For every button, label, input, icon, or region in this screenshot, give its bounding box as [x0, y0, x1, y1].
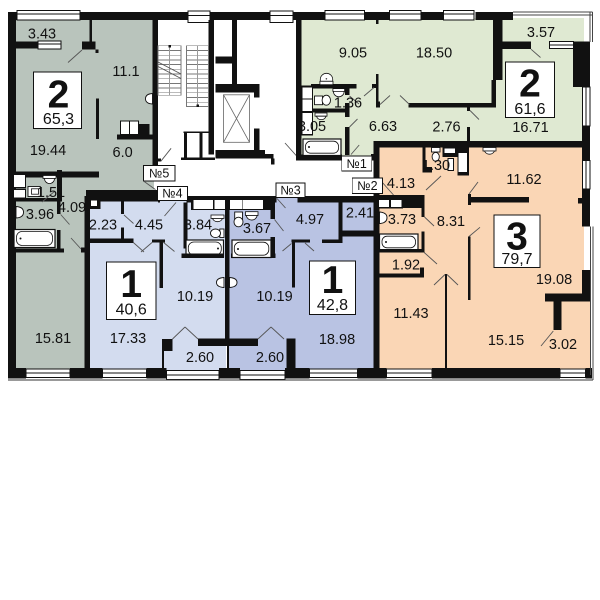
- svg-text:15.81: 15.81: [35, 331, 71, 347]
- svg-text:1.51: 1.51: [37, 185, 65, 201]
- svg-text:9.05: 9.05: [339, 46, 367, 62]
- svg-text:№3: №3: [280, 184, 300, 198]
- svg-text:10.19: 10.19: [177, 289, 213, 305]
- svg-text:18.98: 18.98: [319, 332, 355, 348]
- svg-text:3.96: 3.96: [26, 207, 54, 223]
- svg-text:40,6: 40,6: [116, 302, 147, 319]
- svg-text:79,7: 79,7: [501, 251, 532, 268]
- svg-text:1: 1: [120, 263, 142, 306]
- svg-text:65,3: 65,3: [43, 111, 74, 128]
- svg-text:11.1: 11.1: [112, 64, 139, 80]
- svg-text:3.67: 3.67: [243, 221, 271, 237]
- svg-text:2.60: 2.60: [256, 350, 284, 366]
- svg-text:8.31: 8.31: [437, 214, 465, 230]
- svg-text:6.0: 6.0: [113, 145, 133, 161]
- svg-text:3.57: 3.57: [527, 25, 555, 41]
- svg-text:61,6: 61,6: [514, 101, 545, 118]
- svg-text:11.43: 11.43: [393, 306, 428, 322]
- svg-text:4.09: 4.09: [58, 200, 86, 216]
- svg-text:2.41: 2.41: [346, 206, 374, 222]
- svg-text:19.08: 19.08: [536, 272, 572, 288]
- svg-text:1.92: 1.92: [392, 258, 420, 274]
- svg-text:2.60: 2.60: [186, 350, 214, 366]
- svg-text:10.19: 10.19: [256, 289, 292, 305]
- svg-text:2: 2: [519, 63, 541, 106]
- svg-text:3.84: 3.84: [184, 218, 212, 234]
- svg-text:4.45: 4.45: [135, 218, 163, 234]
- svg-text:2.23: 2.23: [89, 218, 117, 234]
- svg-text:16.71: 16.71: [512, 120, 548, 136]
- svg-text:3.05: 3.05: [298, 119, 326, 135]
- svg-text:15.15: 15.15: [488, 333, 524, 349]
- svg-text:18.50: 18.50: [416, 46, 452, 62]
- svg-text:42,8: 42,8: [317, 297, 348, 314]
- svg-text:1.30: 1.30: [422, 158, 450, 174]
- svg-text:№1: №1: [347, 157, 367, 171]
- svg-text:4.13: 4.13: [387, 176, 415, 192]
- svg-text:19.44: 19.44: [30, 143, 66, 159]
- svg-text:1: 1: [322, 259, 344, 302]
- svg-text:11.62: 11.62: [506, 172, 541, 188]
- svg-text:№5: №5: [149, 167, 169, 181]
- svg-text:3.02: 3.02: [549, 337, 577, 353]
- svg-text:№2: №2: [357, 179, 377, 193]
- svg-text:4.97: 4.97: [296, 212, 324, 228]
- svg-text:2.76: 2.76: [432, 120, 460, 136]
- svg-text:6.63: 6.63: [369, 119, 397, 135]
- svg-text:3.43: 3.43: [28, 27, 56, 43]
- svg-text:1.36: 1.36: [334, 96, 362, 112]
- svg-text:№4: №4: [162, 187, 182, 201]
- svg-text:3.73: 3.73: [388, 212, 416, 228]
- svg-text:17.33: 17.33: [110, 331, 146, 347]
